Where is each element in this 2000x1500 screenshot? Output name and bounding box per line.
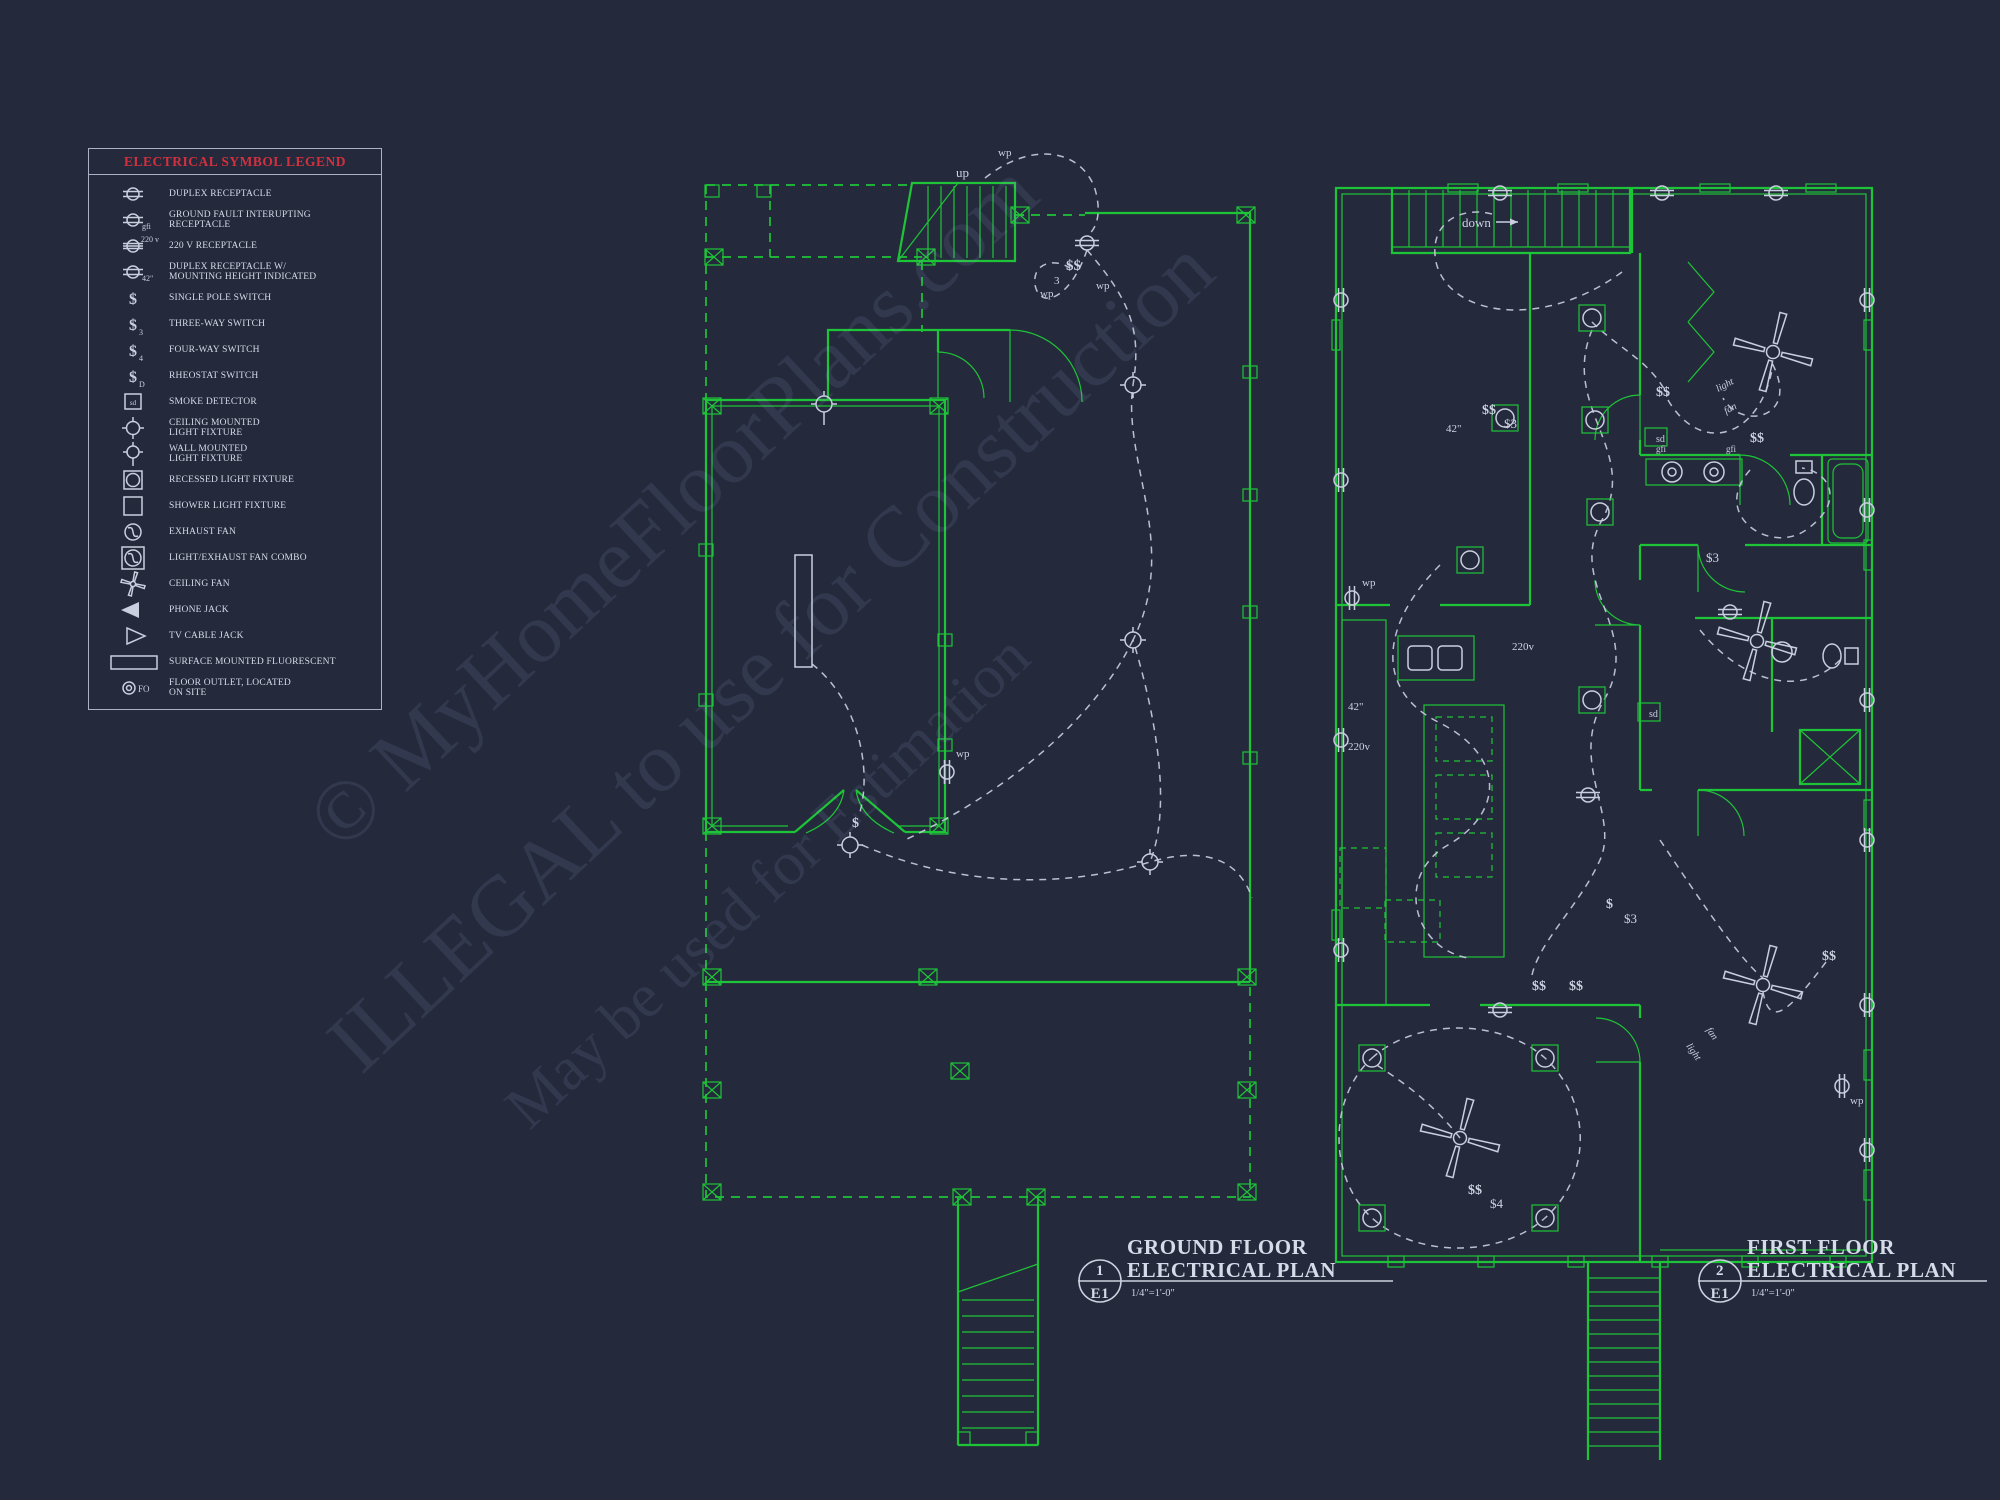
gfi-label: gfi: [1726, 444, 1736, 454]
fan-label: fan: [1722, 401, 1738, 417]
first-stairs-bottom: [1588, 1262, 1660, 1460]
legend-item-label: WALL MOUNTED LIGHT FIXTURE: [169, 444, 247, 465]
first-outer-walls: [1336, 188, 1872, 1262]
gfi-label: gfi: [1656, 444, 1666, 454]
first-partitions: [1336, 253, 1872, 1262]
svg-text:3: 3: [139, 328, 143, 337]
ground-stairs-bottom: [958, 1205, 1038, 1445]
switch-label: $$: [1066, 258, 1082, 274]
ground-deck-dashed-outline: [706, 185, 1250, 1260]
chimney: [795, 555, 812, 667]
legend-item: DUPLEX RECEPTACLE: [99, 181, 375, 207]
blueprint-sheet: up wp $$ 3 wp wp wp $: [0, 0, 2000, 1500]
switch-label: $3: [1624, 911, 1637, 926]
svg-text:gfi: gfi: [142, 222, 152, 231]
legend-panel: ELECTRICAL SYMBOL LEGEND DUPLEX RECEPTAC…: [88, 148, 382, 710]
ceiling-fan-icon: [1723, 945, 1802, 1024]
shower-light-icon: [99, 493, 169, 519]
wp-label: wp: [1362, 577, 1376, 589]
legend-rows: DUPLEX RECEPTACLEgfiGROUND FAULT INTERUP…: [89, 175, 381, 701]
receptacle-icon: [1835, 1074, 1849, 1098]
recessed-light-icon: [1359, 1205, 1385, 1231]
legend-item-label: SMOKE DETECTOR: [169, 397, 257, 408]
title-block-first: 2 E1 FIRST FLOOR ELECTRICAL PLAN 1/4"=1'…: [1698, 1235, 1987, 1302]
recessed-light-icon: [99, 467, 169, 493]
svg-text:220 v: 220 v: [141, 235, 159, 244]
switch-label: $$: [1750, 431, 1764, 446]
switch-label: $: [852, 816, 859, 831]
legend-item: PHONE JACK: [99, 597, 375, 623]
ceiling-fan-icon: [1717, 601, 1796, 680]
four-way-switch-icon: $4: [99, 337, 169, 363]
smoke-detector-icon: sd: [99, 389, 169, 415]
receptacle-icon: [1345, 586, 1359, 610]
plan-title-line1: GROUND FLOOR: [1127, 1235, 1308, 1259]
wall-light-icon: [99, 441, 169, 467]
switch-label: $$: [1569, 979, 1583, 994]
switch-label: $$: [1482, 403, 1496, 418]
down-label: down: [1462, 215, 1491, 230]
svg-text:42": 42": [142, 274, 153, 283]
legend-item-label: FLOOR OUTLET, LOCATED ON SITE: [169, 678, 291, 699]
legend-item-label: SHOWER LIGHT FIXTURE: [169, 501, 286, 512]
surface-fluorescent-icon: [99, 649, 169, 675]
light-label: light: [1714, 376, 1736, 394]
switch-label: $: [1606, 897, 1613, 912]
switch-label: $$: [1468, 1183, 1482, 1198]
legend-item-label: FOUR-WAY SWITCH: [169, 345, 260, 356]
ceiling-fan-icon: [1733, 312, 1812, 391]
svg-text:$: $: [129, 317, 137, 334]
detail-number: 2: [1716, 1263, 1724, 1279]
light-label: light: [1684, 1041, 1704, 1063]
fan-label: fan: [1704, 1025, 1720, 1042]
legend-item: $3THREE-WAY SWITCH: [99, 311, 375, 337]
ground-fixtures: [795, 236, 1163, 875]
legend-item-label: EXHAUST FAN: [169, 527, 236, 538]
duplex-receptacle-icon: [99, 181, 169, 207]
plan-scale: 1/4"=1'-0": [1131, 1288, 1175, 1299]
svg-text:$: $: [129, 291, 137, 308]
legend-item: sdSMOKE DETECTOR: [99, 389, 375, 415]
plan-scale: 1/4"=1'-0": [1751, 1288, 1795, 1299]
first-windows-posts: [1332, 184, 1872, 1267]
ground-stairs-top: [898, 183, 1015, 261]
legend-item: SURFACE MOUNTED FLUORESCENT: [99, 649, 375, 675]
legend-item: 42"DUPLEX RECEPTACLE W/ MOUNTING HEIGHT …: [99, 259, 375, 285]
single-pole-switch-icon: $: [99, 285, 169, 311]
legend-item-label: LIGHT/EXHAUST FAN COMBO: [169, 553, 307, 564]
svg-text:$: $: [129, 369, 137, 386]
ceiling-light-icon: [837, 832, 863, 858]
legend-item-label: 220 V RECEPTACLE: [169, 241, 257, 252]
legend-item: gfiGROUND FAULT INTERUPTING RECEPTACLE: [99, 207, 375, 233]
wp-label: wp: [956, 748, 970, 760]
recessed-light-icon: [1587, 499, 1613, 525]
legend-item-label: SINGLE POLE SWITCH: [169, 293, 271, 304]
voltage-label: 220v: [1512, 641, 1535, 653]
recessed-light-icon: [1579, 305, 1605, 331]
duplex-receptacle-42-icon: 42": [99, 259, 169, 285]
svg-text:4: 4: [139, 354, 143, 363]
plan-title-line1: FIRST FLOOR: [1747, 1235, 1895, 1259]
gfi-receptacle-icon: gfi: [99, 207, 169, 233]
legend-item: RECESSED LIGHT FIXTURE: [99, 467, 375, 493]
legend-item: WALL MOUNTED LIGHT FIXTURE: [99, 441, 375, 467]
height-label: 42": [1348, 701, 1364, 713]
legend-item-label: SURFACE MOUNTED FLUORESCENT: [169, 657, 336, 668]
ground-text-labels: up wp $$ 3 wp wp wp $: [852, 147, 1110, 831]
ground-walls: [706, 213, 1250, 982]
legend-item-label: TV CABLE JACK: [169, 631, 244, 642]
legend-item-label: RECESSED LIGHT FIXTURE: [169, 475, 294, 486]
ceiling-light-icon: [1137, 849, 1163, 875]
legend-item-label: DUPLEX RECEPTACLE: [169, 189, 272, 200]
switch-label: $$: [1822, 949, 1836, 964]
floor-outlet-icon: FO: [99, 675, 169, 701]
legend-title: ELECTRICAL SYMBOL LEGEND: [89, 149, 381, 175]
exhaust-fan-icon: [99, 519, 169, 545]
switch-label: $$: [1656, 385, 1670, 400]
svg-text:D: D: [139, 380, 145, 389]
switch-label: $3: [1706, 550, 1719, 565]
sheet-number: E1: [1091, 1286, 1110, 1302]
legend-item: FOFLOOR OUTLET, LOCATED ON SITE: [99, 675, 375, 701]
legend-item: CEILING FAN: [99, 571, 375, 597]
legend-item: $DRHEOSTAT SWITCH: [99, 363, 375, 389]
legend-item: TV CABLE JACK: [99, 623, 375, 649]
first-wiring: [1339, 212, 1840, 1248]
wp-label: wp: [1096, 280, 1110, 292]
phone-jack-icon: [99, 597, 169, 623]
svg-text:$: $: [129, 343, 137, 360]
legend-item-label: CEILING FAN: [169, 579, 230, 590]
recessed-light-icon: [1582, 407, 1608, 433]
recessed-light-icon: [1579, 687, 1605, 713]
legend-item-label: PHONE JACK: [169, 605, 229, 616]
wp-label: wp: [1040, 288, 1054, 300]
legend-item-label: CEILING MOUNTED LIGHT FIXTURE: [169, 418, 260, 439]
ceiling-fan-icon: [99, 571, 169, 597]
svg-text:FO: FO: [138, 684, 150, 694]
rheostat-switch-icon: $D: [99, 363, 169, 389]
recessed-light-icon: [1457, 547, 1483, 573]
legend-item-label: DUPLEX RECEPTACLE W/ MOUNTING HEIGHT IND…: [169, 262, 316, 283]
three-label: 3: [1054, 275, 1060, 287]
legend-item: CEILING MOUNTED LIGHT FIXTURE: [99, 415, 375, 441]
legend-item: LIGHT/EXHAUST FAN COMBO: [99, 545, 375, 571]
legend-item: 220 v220 V RECEPTACLE: [99, 233, 375, 259]
220v-receptacle-icon: 220 v: [99, 233, 169, 259]
wp-label: wp: [1850, 1095, 1864, 1107]
legend-item: $4FOUR-WAY SWITCH: [99, 337, 375, 363]
wp-label: wp: [998, 147, 1012, 159]
legend-item: $SINGLE POLE SWITCH: [99, 285, 375, 311]
svg-text:sd: sd: [130, 399, 137, 407]
first-kitchen: [1340, 620, 1504, 1005]
receptacle-icon: [1075, 236, 1099, 250]
switch-label: $3: [1504, 416, 1517, 431]
detail-number: 1: [1096, 1263, 1104, 1279]
up-label: up: [956, 165, 969, 180]
ceiling-light-icon: [99, 415, 169, 441]
title-block-ground: 1 E1 GROUND FLOOR ELECTRICAL PLAN 1/4"=1…: [1078, 1235, 1393, 1302]
receptacle-icon: [1576, 788, 1600, 802]
three-way-switch-icon: $3: [99, 311, 169, 337]
wall-light-icon: [811, 391, 837, 425]
legend-item: EXHAUST FAN: [99, 519, 375, 545]
sheet-number: E1: [1711, 1286, 1730, 1302]
tv-cable-jack-icon: [99, 623, 169, 649]
first-fixtures: [1334, 186, 1874, 1231]
sd-label: sd: [1649, 709, 1658, 720]
ground-column-markers: [699, 185, 1257, 1205]
voltage-label: 220v: [1348, 741, 1371, 753]
legend-item-label: RHEOSTAT SWITCH: [169, 371, 258, 382]
height-label: 42": [1446, 423, 1462, 435]
legend-item-label: THREE-WAY SWITCH: [169, 319, 265, 330]
light-exhaust-combo-icon: [99, 545, 169, 571]
receptacle-icon: [940, 760, 954, 784]
legend-item-label: GROUND FAULT INTERUPTING RECEPTACLE: [169, 210, 311, 231]
legend-item: SHOWER LIGHT FIXTURE: [99, 493, 375, 519]
switch-label: $$: [1532, 979, 1546, 994]
plan-title-line2: ELECTRICAL PLAN: [1747, 1258, 1956, 1282]
switch-label: $4: [1490, 1196, 1504, 1211]
ground-wiring: [812, 154, 1252, 898]
plan-title-line2: ELECTRICAL PLAN: [1127, 1258, 1336, 1282]
